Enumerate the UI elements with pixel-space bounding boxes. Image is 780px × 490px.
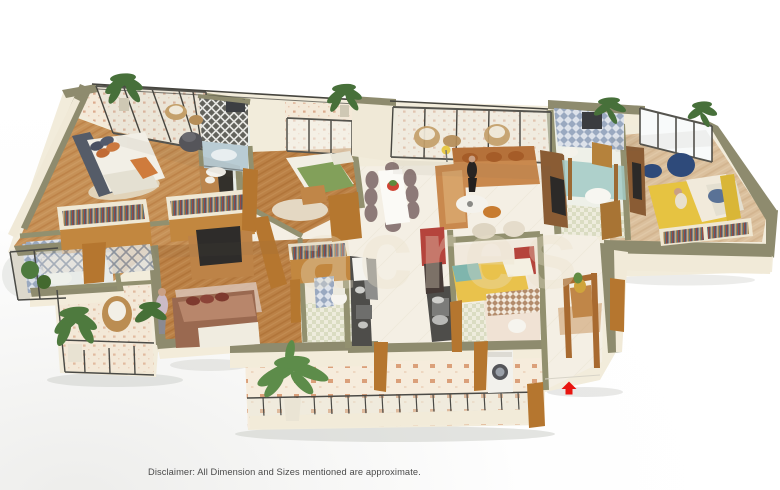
svg-text:acres: acres — [298, 199, 584, 309]
